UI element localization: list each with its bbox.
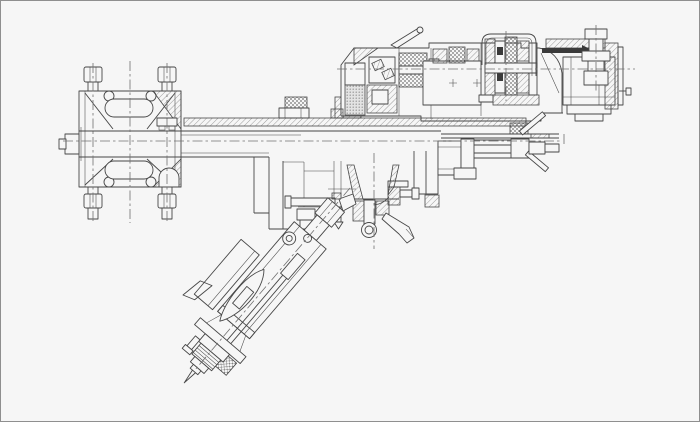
flange-slot-top bbox=[105, 99, 153, 117]
drawing-canvas bbox=[0, 0, 700, 422]
shift-lever bbox=[391, 27, 423, 48]
top-mounting-plate bbox=[184, 118, 526, 126]
bearing-cluster bbox=[367, 57, 397, 113]
lower-housing bbox=[254, 143, 439, 243]
flange-slot-bottom bbox=[105, 161, 153, 179]
gear-train-housing bbox=[331, 27, 631, 121]
shaft-end-cap bbox=[59, 127, 81, 161]
plate-clamp-bolt bbox=[279, 97, 309, 118]
tool-bit bbox=[183, 370, 196, 384]
gear-block bbox=[345, 85, 365, 115]
deflector-blade bbox=[382, 213, 414, 243]
gear-cluster-main bbox=[479, 37, 539, 105]
mounting-flange bbox=[59, 67, 181, 219]
assembly-cross-section-drawing bbox=[1, 1, 700, 422]
